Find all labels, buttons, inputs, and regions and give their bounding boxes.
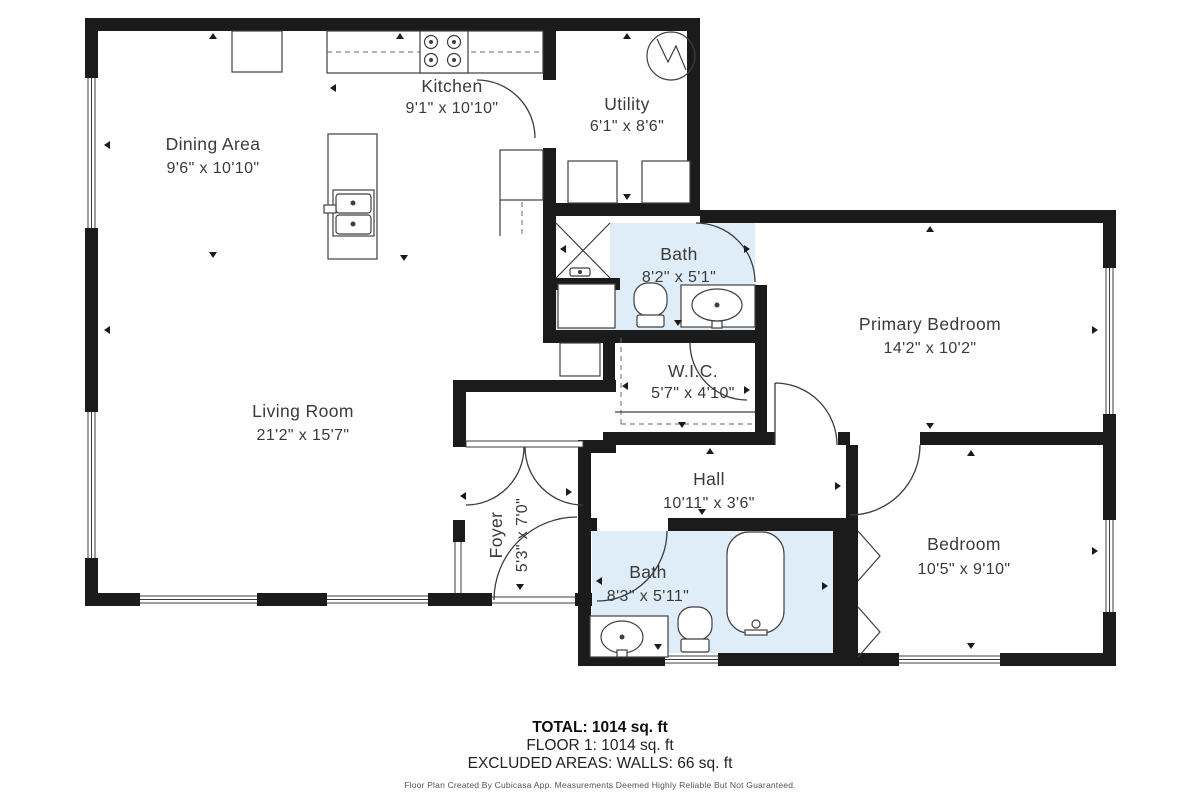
foyer-closet-doors xyxy=(466,441,583,505)
refrigerator xyxy=(232,31,282,72)
room-label-bedroom: Bedroom xyxy=(927,534,1001,554)
window-bath2-south xyxy=(665,653,718,666)
bath2-toilet xyxy=(678,607,712,652)
room-label-living: Living Room xyxy=(252,401,354,421)
nook-table xyxy=(560,343,600,376)
room-dims-wic: 5'7" x 4'10" xyxy=(651,385,735,402)
room-dims-foyer: 5'3" x 7'0" xyxy=(514,498,531,572)
floor-area-text: FLOOR 1: 1014 sq. ft xyxy=(526,737,674,754)
room-label-wic: W.I.C. xyxy=(668,361,718,381)
bathtub xyxy=(727,532,784,635)
bath1-counter xyxy=(558,284,615,328)
window-left-lower xyxy=(85,412,98,558)
floor-plan-page: Dining Area 9'6" x 10'10" Kitchen 9'1" x… xyxy=(0,0,1200,805)
summary-block: TOTAL: 1014 sq. ft FLOOR 1: 1014 sq. ft … xyxy=(404,719,795,790)
washer xyxy=(568,161,617,203)
room-label-bath1: Bath xyxy=(660,244,698,264)
room-dims-kitchen: 9'1" x 10'10" xyxy=(406,100,499,117)
dryer xyxy=(642,161,690,203)
room-label-kitchen: Kitchen xyxy=(421,76,482,96)
window-bedroom-east xyxy=(1103,520,1116,612)
wic-closet-lines xyxy=(615,338,755,428)
room-label-primary-bedroom: Primary Bedroom xyxy=(859,314,1001,334)
room-dims-bedroom: 10'5" x 9'10" xyxy=(918,561,1011,578)
room-label-foyer: Foyer xyxy=(486,512,506,559)
sidelight-foyer xyxy=(453,542,463,593)
room-dims-hall: 10'11" x 3'6" xyxy=(663,495,755,512)
room-dims-bath2: 8'3" x 5'11" xyxy=(607,588,689,605)
room-label-dining: Dining Area xyxy=(166,134,261,154)
entry-threshold xyxy=(492,596,575,604)
entry-door-arc xyxy=(494,517,577,600)
bedroom-door-arc xyxy=(850,445,920,515)
total-area-text: TOTAL: 1014 sq. ft xyxy=(532,719,668,736)
room-label-hall: Hall xyxy=(693,469,725,489)
footer-disclaimer: Floor Plan Created By Cubicasa App. Meas… xyxy=(404,780,795,790)
bath2-sink-vanity xyxy=(590,616,668,657)
floor-plan: Dining Area 9'6" x 10'10" Kitchen 9'1" x… xyxy=(0,0,1200,805)
bedroom-closet-bifold-doors xyxy=(858,531,880,657)
window-primary-east xyxy=(1103,268,1116,414)
room-dims-utility: 6'1" x 8'6" xyxy=(590,118,664,135)
kitchen-fixtures xyxy=(232,31,543,259)
room-dims-living: 21'2" x 15'7" xyxy=(257,427,350,444)
kitchen-cabinet xyxy=(500,150,543,236)
room-label-bath2: Bath xyxy=(629,562,667,582)
window-living-south-1 xyxy=(140,593,257,606)
window-left-upper xyxy=(85,78,98,228)
room-label-utility: Utility xyxy=(604,94,650,114)
room-dims-dining: 9'6" x 10'10" xyxy=(167,160,260,177)
window-bedroom-south xyxy=(899,653,1000,666)
bath1-sink-vanity xyxy=(681,285,755,328)
bath1-toilet xyxy=(634,283,667,327)
excluded-area-text: EXCLUDED AREAS: WALLS: 66 sq. ft xyxy=(468,755,733,772)
room-dims-primary-bedroom: 14'2" x 10'2" xyxy=(884,340,977,357)
primary-bedroom-door-arc xyxy=(775,383,837,445)
room-dims-bath1: 8'2" x 5'1" xyxy=(642,269,716,286)
window-living-south-2 xyxy=(327,593,428,606)
